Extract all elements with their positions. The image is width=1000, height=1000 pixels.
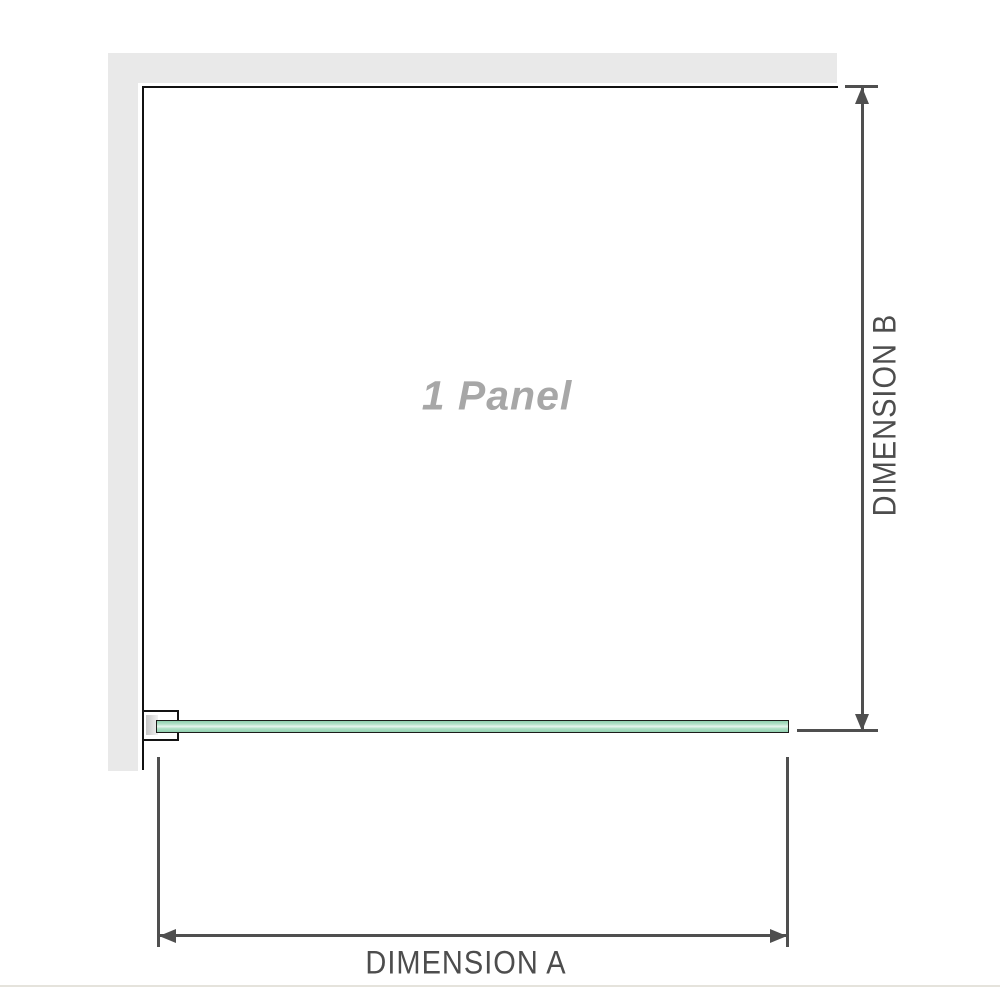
glass-panel bbox=[156, 720, 789, 733]
arrow-right-icon bbox=[770, 929, 787, 943]
wall-left bbox=[108, 53, 138, 771]
dimension-b-tick-bottom bbox=[797, 729, 878, 732]
wall-top bbox=[108, 53, 837, 83]
footer-rule bbox=[0, 985, 1000, 987]
dimension-b-tick-top bbox=[845, 85, 878, 88]
shower-panel-diagram: 1 Panel DIMENSION B DIMENSION A bbox=[0, 0, 1000, 1000]
dimension-b-label: DIMENSION B bbox=[868, 314, 905, 517]
dimension-a-extension-right bbox=[786, 757, 789, 947]
arrow-left-icon bbox=[159, 929, 176, 943]
wall-edge-line-left bbox=[142, 86, 144, 770]
arrow-up-icon bbox=[855, 87, 869, 104]
dimension-a-label: DIMENSION A bbox=[365, 946, 566, 983]
wall-edge-line-top bbox=[142, 86, 838, 88]
dimension-a-line bbox=[160, 934, 787, 937]
dimension-a-extension-left bbox=[157, 757, 160, 947]
dimension-b-line bbox=[861, 88, 864, 729]
panel-count-label: 1 Panel bbox=[422, 373, 573, 420]
